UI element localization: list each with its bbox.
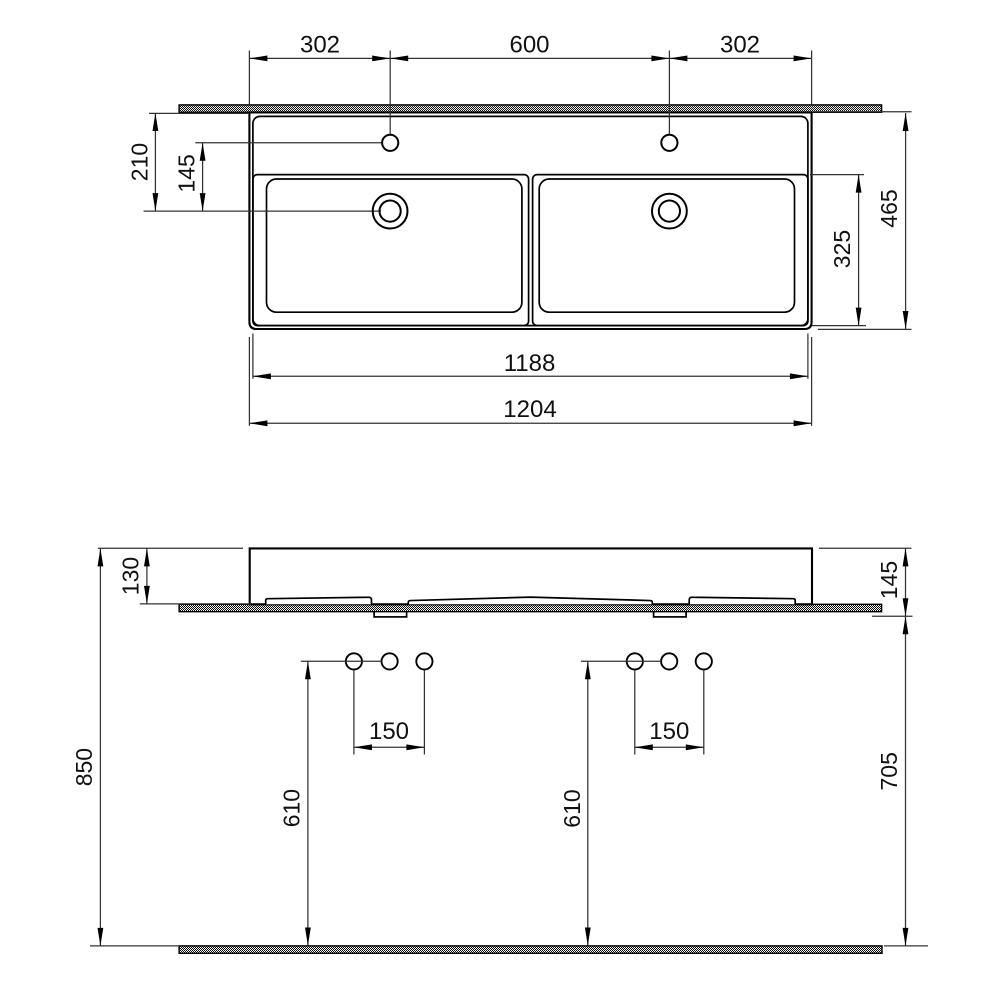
- svg-text:610: 610: [559, 789, 585, 827]
- svg-text:610: 610: [279, 789, 305, 827]
- svg-text:150: 150: [369, 718, 409, 745]
- svg-text:210: 210: [126, 143, 152, 181]
- svg-text:150: 150: [649, 718, 689, 745]
- svg-text:850: 850: [71, 748, 97, 786]
- svg-text:465: 465: [876, 189, 902, 227]
- svg-text:145: 145: [173, 154, 199, 192]
- svg-text:302: 302: [720, 32, 760, 59]
- svg-text:705: 705: [876, 752, 902, 790]
- svg-text:325: 325: [829, 230, 855, 268]
- svg-text:600: 600: [509, 32, 549, 59]
- svg-text:302: 302: [300, 32, 340, 59]
- svg-text:130: 130: [118, 557, 144, 595]
- svg-text:1188: 1188: [504, 350, 556, 377]
- svg-text:1204: 1204: [503, 396, 556, 423]
- svg-text:145: 145: [876, 561, 902, 599]
